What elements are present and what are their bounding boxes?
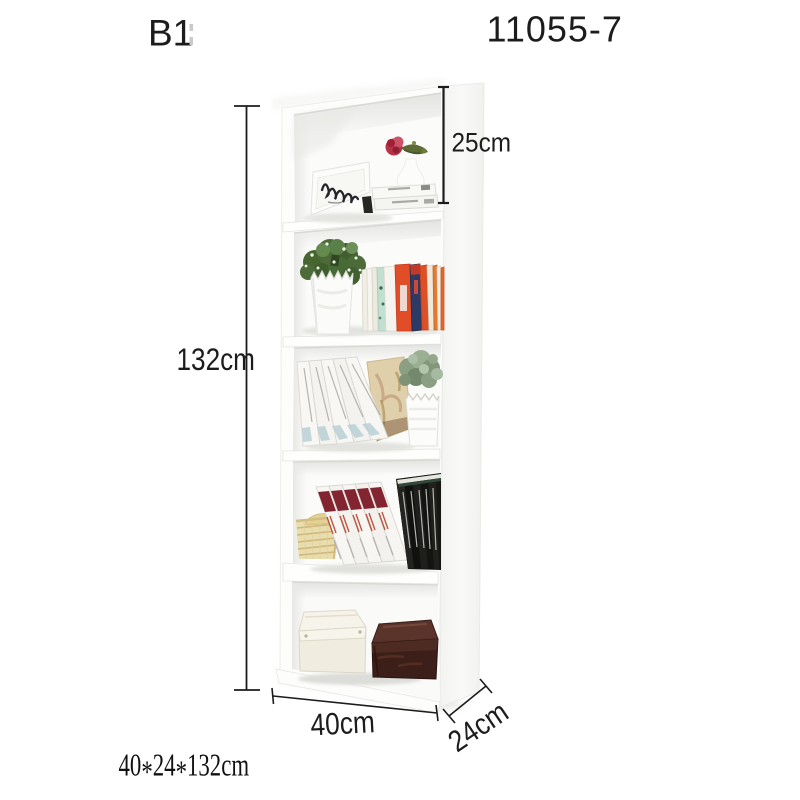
svg-text:B1: B1	[148, 13, 193, 54]
svg-text:40cm: 40cm	[310, 705, 376, 743]
svg-text:25cm: 25cm	[452, 129, 512, 158]
svg-text:132cm: 132cm	[177, 343, 255, 378]
svg-text:11055-7: 11055-7	[487, 9, 623, 50]
